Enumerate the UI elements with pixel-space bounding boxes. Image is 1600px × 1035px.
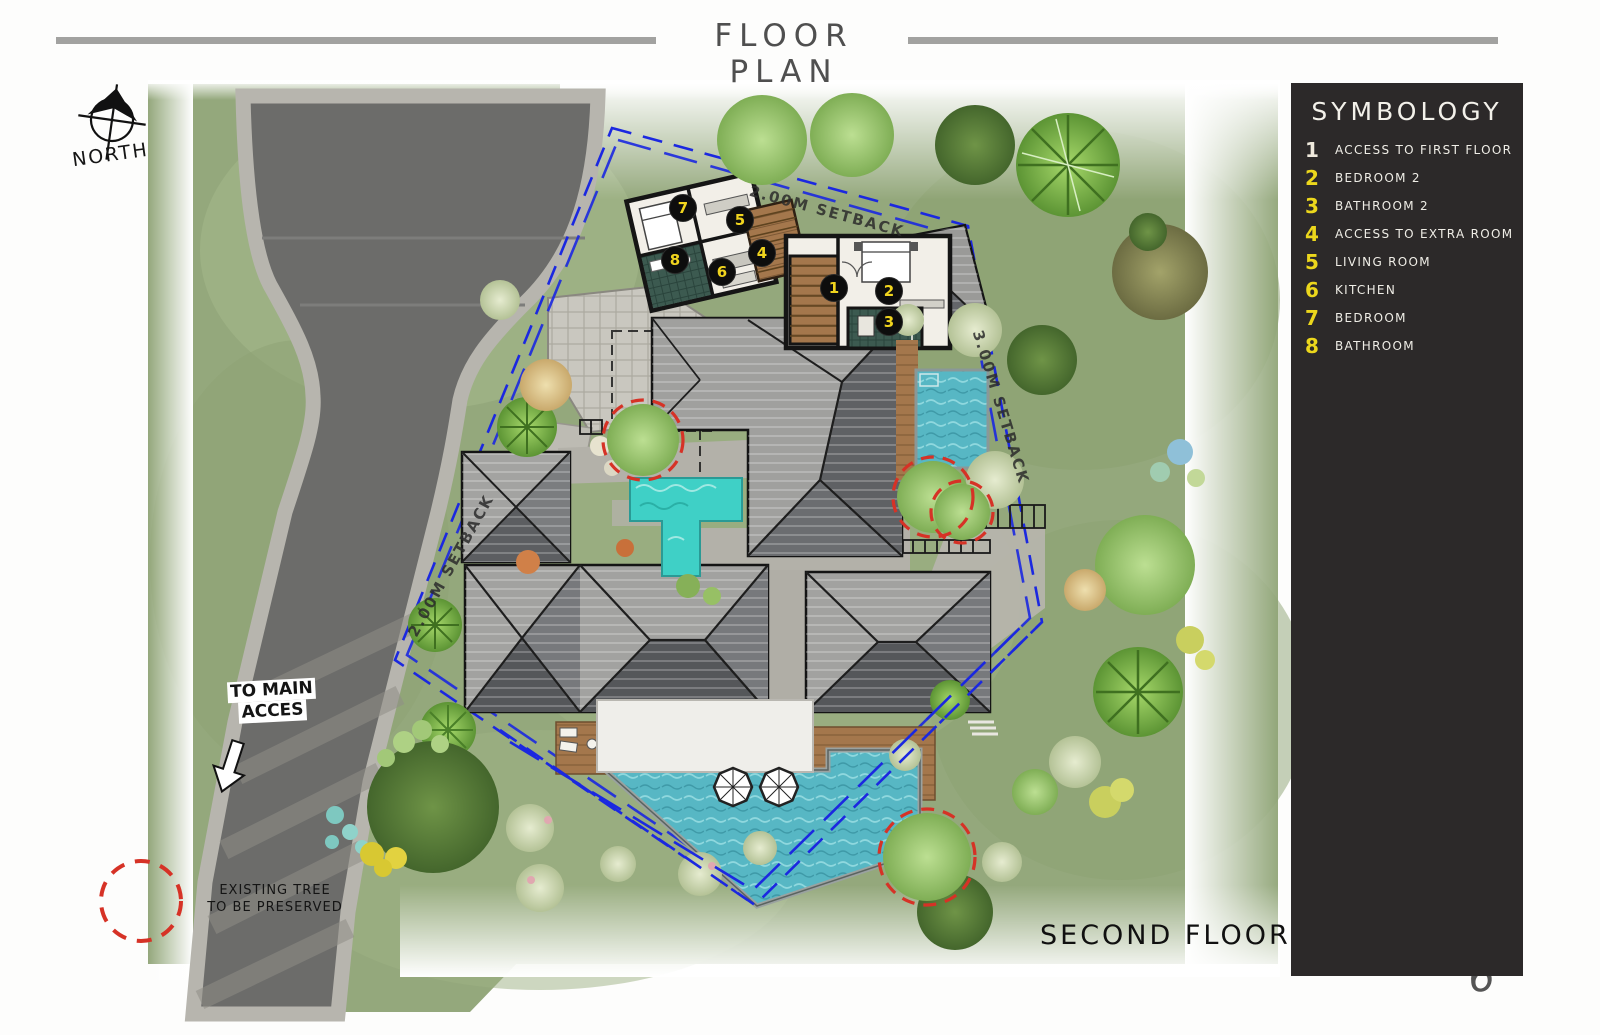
room-marker-6: 6 bbox=[708, 258, 736, 286]
legend-item-number: 7 bbox=[1305, 306, 1335, 330]
legend-item-number: 8 bbox=[1305, 334, 1335, 358]
preserved-tree-note-line2: TO BE PRESERVED bbox=[200, 899, 350, 916]
legend-item-2: 2BEDROOM 2 bbox=[1305, 164, 1523, 192]
legend-item-6: 6KITCHEN bbox=[1305, 276, 1523, 304]
legend-item-8: 8BATHROOM bbox=[1305, 332, 1523, 360]
ground-floor-terrace bbox=[597, 700, 813, 772]
legend-item-number: 5 bbox=[1305, 250, 1335, 274]
room-marker-7: 7 bbox=[669, 194, 697, 222]
floor-plan-page: FLOOR PLAN NORTH TO MAIN ACCES 2.00M SET… bbox=[0, 0, 1600, 1035]
legend-item-4: 4ACCESS TO EXTRA ROOM bbox=[1305, 220, 1523, 248]
legend-item-number: 2 bbox=[1305, 166, 1335, 190]
room-marker-5: 5 bbox=[726, 206, 754, 234]
legend-item-label: BATHROOM bbox=[1335, 339, 1415, 353]
floor-caption: SECOND FLOOR bbox=[1040, 920, 1291, 951]
legend-items: 1ACCESS TO FIRST FLOOR2BEDROOM 23BATHROO… bbox=[1291, 136, 1523, 360]
bedroom2-plan bbox=[786, 236, 950, 348]
room-marker-8: 8 bbox=[661, 246, 689, 274]
legend-item-label: BEDROOM bbox=[1335, 311, 1407, 325]
legend-item-3: 3BATHROOM 2 bbox=[1305, 192, 1523, 220]
symbology-panel: SYMBOLOGY 1ACCESS TO FIRST FLOOR2BEDROOM… bbox=[1291, 83, 1523, 976]
legend-item-7: 7BEDROOM bbox=[1305, 304, 1523, 332]
room-marker-3: 3 bbox=[875, 308, 903, 336]
preserved-tree-note-line1: EXISTING TREE bbox=[200, 882, 350, 899]
legend-item-number: 6 bbox=[1305, 278, 1335, 302]
legend-item-number: 1 bbox=[1305, 138, 1335, 162]
legend-item-label: ACCESS TO EXTRA ROOM bbox=[1335, 227, 1513, 241]
symbology-title: SYMBOLOGY bbox=[1291, 97, 1523, 126]
legend-item-5: 5LIVING ROOM bbox=[1305, 248, 1523, 276]
page-title: FLOOR PLAN bbox=[660, 18, 908, 90]
legend-item-number: 4 bbox=[1305, 222, 1335, 246]
legend-item-1: 1ACCESS TO FIRST FLOOR bbox=[1305, 136, 1523, 164]
room-marker-1: 1 bbox=[820, 274, 848, 302]
legend-item-label: KITCHEN bbox=[1335, 283, 1396, 297]
legend-item-label: ACCESS TO FIRST FLOOR bbox=[1335, 143, 1512, 157]
title-rule-right bbox=[908, 37, 1498, 44]
legend-item-number: 3 bbox=[1305, 194, 1335, 218]
legend-item-label: BATHROOM 2 bbox=[1335, 199, 1429, 213]
roof-southwest-building bbox=[465, 565, 768, 712]
main-access-label: TO MAIN ACCES bbox=[221, 677, 323, 724]
legend-item-label: BEDROOM 2 bbox=[1335, 171, 1421, 185]
legend-item-label: LIVING ROOM bbox=[1335, 255, 1431, 269]
main-access-line2: ACCES bbox=[238, 699, 307, 724]
room-marker-2: 2 bbox=[875, 277, 903, 305]
preserved-tree-note: EXISTING TREE TO BE PRESERVED bbox=[200, 882, 350, 916]
room-marker-4: 4 bbox=[748, 239, 776, 267]
title-rule-left bbox=[56, 37, 656, 44]
